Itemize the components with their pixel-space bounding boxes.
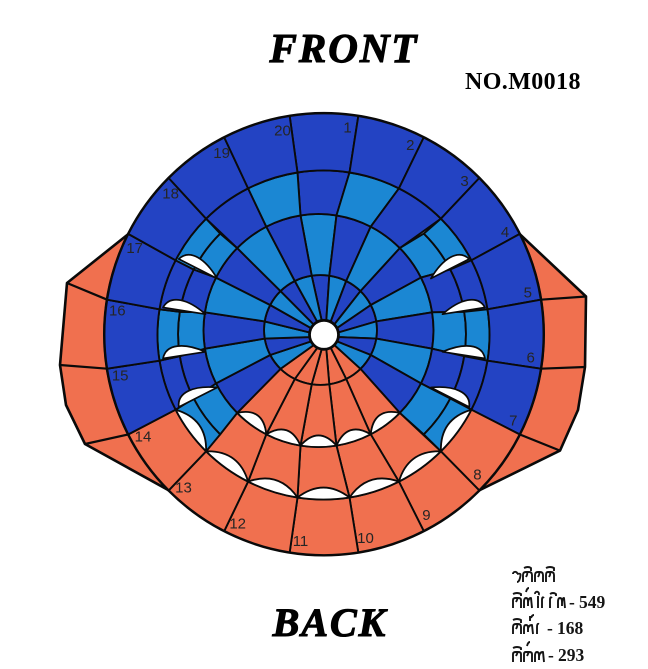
svg-text:168: 168 xyxy=(557,618,584,638)
svg-text:-: - xyxy=(569,592,575,612)
svg-text:-: - xyxy=(548,645,554,665)
svg-text:-: - xyxy=(547,618,553,638)
svg-text:549: 549 xyxy=(579,592,606,612)
svg-text:293: 293 xyxy=(558,645,585,665)
